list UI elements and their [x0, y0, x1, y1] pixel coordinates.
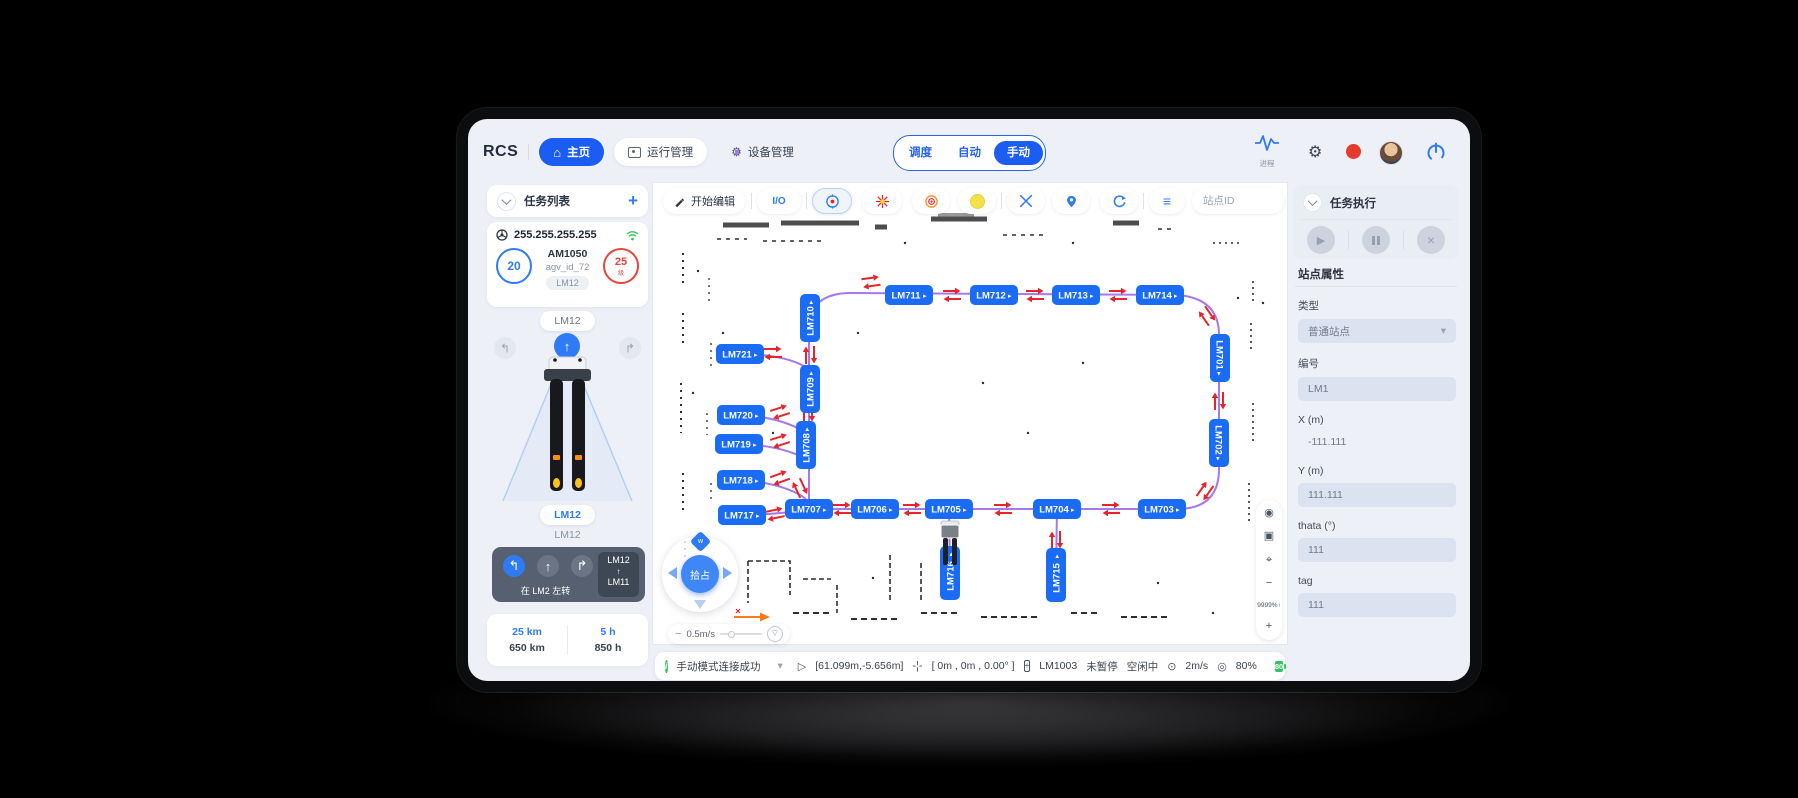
chevron-down-icon: [1308, 196, 1318, 206]
svg-text:↑: ↑: [564, 339, 571, 354]
svg-text:▸: ▸: [1176, 507, 1180, 514]
compass-tool-button[interactable]: [812, 188, 852, 214]
user-avatar[interactable]: [1379, 141, 1403, 165]
field-label: thata (°): [1298, 520, 1456, 532]
cursor-coords: [61.099m,-5.656m]: [815, 660, 903, 672]
joystick[interactable]: w 拾占: [662, 536, 738, 612]
refresh-icon: [1112, 194, 1127, 209]
station-nodes: LM710▸LM721▸LM711▸LM712▸LM713▸LM714▸LM70…: [715, 285, 1230, 602]
load-percent: 80%: [1236, 660, 1257, 672]
map-node-LM719[interactable]: LM719▸: [715, 434, 763, 454]
steering-wheel-icon: [496, 229, 508, 241]
rotate-left-button[interactable]: ↰: [494, 337, 516, 359]
svg-text:↰: ↰: [500, 342, 510, 356]
add-task-button[interactable]: +: [628, 194, 638, 208]
svg-text:↱: ↱: [625, 342, 635, 356]
map-node-LM705[interactable]: LM705▸: [925, 499, 973, 519]
speed-reading: 2m/s: [1185, 660, 1208, 672]
go-forward-button[interactable]: ↑: [537, 555, 559, 577]
svg-text:▸: ▸: [808, 371, 815, 375]
direction-arrows-icon: [1194, 479, 1216, 502]
svg-text:LM707: LM707: [791, 504, 821, 515]
route-path: [809, 293, 1219, 509]
svg-text:LM705: LM705: [931, 504, 961, 515]
svg-text:▸: ▸: [1008, 293, 1012, 300]
forward-button[interactable]: ↑: [554, 333, 580, 359]
eye-icon[interactable]: ◉: [1264, 508, 1274, 519]
nav-tab-operations-label: 运行管理: [647, 144, 693, 160]
starburst-tool-button[interactable]: [862, 188, 902, 214]
map-node-LM720[interactable]: LM720▸: [717, 405, 765, 425]
svg-text:▸: ▸: [755, 413, 759, 420]
pause-button[interactable]: [1362, 226, 1390, 254]
route-from: LM12: [598, 555, 639, 567]
svg-text:▸: ▸: [756, 513, 760, 520]
toolbar-sep-1: [751, 193, 752, 209]
power-button[interactable]: [1424, 140, 1448, 169]
agv-model: AM1050: [540, 248, 595, 260]
task-exec-card: 任务执行 ▶ ×: [1293, 185, 1459, 259]
mode-toggle: 调度 自动 手动: [893, 135, 1046, 171]
app-screen: RCS ⌂ 主页 运行管理 ⚙ 设备管理 调度 自动 手动: [468, 119, 1470, 681]
svg-text:LM710: LM710: [805, 306, 816, 336]
manual-control-panel: ↰ ↑ ↱ LM12 ↑ LM11 在 LM2 左转: [492, 547, 645, 602]
refresh-button[interactable]: [1100, 188, 1138, 214]
field-value: 111: [1308, 599, 1324, 611]
app-logo: RCS: [483, 143, 518, 161]
clear-selection-button[interactable]: [1007, 188, 1045, 214]
idle-state: 空闲中: [1127, 659, 1159, 674]
turn-back-button[interactable]: ↰: [503, 555, 525, 577]
svg-text:LM711: LM711: [891, 290, 921, 301]
direction-arrows-icon: [1196, 304, 1218, 327]
props-divider: [1295, 286, 1457, 287]
field-label: Y (m): [1298, 465, 1456, 477]
map-status-bar: i 手动模式连接成功 ▾ ▷ [61.099m,-5.656m] -¦- [ 0…: [655, 652, 1285, 680]
topbar-left: RCS ⌂ 主页 运行管理 ⚙ 设备管理: [483, 138, 808, 166]
svg-text:LM706: LM706: [857, 504, 887, 515]
robot-pose: [ 0m , 0m , 0.00° ]: [932, 660, 1015, 672]
device-frame: RCS ⌂ 主页 运行管理 ⚙ 设备管理 调度 自动 手动: [457, 108, 1481, 692]
battery-icon: 80: [1275, 661, 1283, 672]
toolbar-sep-4: [1143, 193, 1144, 209]
agv-ip-row: 255.255.255.255: [496, 229, 639, 241]
field-value: 111.111: [1308, 489, 1343, 501]
svg-text:▸: ▸: [963, 507, 967, 514]
stat-distance: 25 km 650 km: [487, 626, 567, 654]
field-input[interactable]: 111: [1298, 593, 1456, 617]
field-input[interactable]: 111: [1298, 538, 1456, 562]
info-icon: i: [665, 660, 668, 673]
io-label: I/O: [772, 196, 785, 207]
svg-text:▸: ▸: [1054, 554, 1061, 558]
pb-sep-1: [1348, 231, 1349, 249]
chevron-down-icon: [502, 195, 512, 205]
mode-dispatch[interactable]: 调度: [896, 141, 945, 165]
collapse-task-list-button[interactable]: [497, 192, 516, 211]
svg-text:▸: ▸: [804, 427, 811, 431]
joystick-up-diamond[interactable]: w: [690, 531, 711, 552]
station-pill-top[interactable]: LM12: [540, 311, 595, 331]
play-button[interactable]: ▶: [1307, 226, 1335, 254]
toolbar-sep-3: [1001, 193, 1002, 209]
svg-text:LM701: LM701: [1214, 340, 1225, 370]
map-node-LM714[interactable]: LM714▸: [1136, 285, 1184, 305]
waveform-icon: [1254, 133, 1280, 153]
map-node-LM708[interactable]: LM708▸: [796, 421, 816, 469]
map-node-LM718[interactable]: LM718▸: [717, 470, 765, 490]
field-value: LM1: [1308, 383, 1328, 395]
start-edit-button[interactable]: 开始编辑: [663, 188, 745, 214]
field-label: tag: [1298, 575, 1456, 587]
svg-text:LM712: LM712: [976, 290, 1006, 301]
map-view-controls: ◉ ▣ ⌖ − 9999%↑ +: [1256, 500, 1282, 640]
stat-hours: 5 h 850 h: [568, 626, 648, 654]
target-tool-button[interactable]: [912, 188, 950, 214]
location-pin-icon: [1065, 194, 1078, 209]
svg-text:▸: ▸: [1174, 293, 1178, 300]
station-pill-bottom[interactable]: LM12: [540, 505, 595, 525]
speedometer-icon: ⊙: [1167, 660, 1176, 673]
cross-icon: [1019, 194, 1033, 208]
speed-minus-icon[interactable]: −: [675, 628, 681, 640]
svg-text:▸: ▸: [754, 352, 758, 359]
status-message: 手动模式连接成功: [677, 659, 761, 674]
svg-text:LM704: LM704: [1039, 504, 1069, 515]
agv-card[interactable]: 255.255.255.255 20 AM1050 agv_id_72 LM12: [487, 222, 648, 307]
svg-text:LM708: LM708: [801, 433, 812, 463]
station-box-icon: +: [1024, 660, 1031, 672]
direction-arrows-icon: [861, 274, 881, 291]
route-action-text: 在 LM2 左转: [498, 584, 593, 597]
joystick-center-button[interactable]: 拾占: [681, 555, 719, 593]
field-value: 普通站点: [1308, 324, 1350, 339]
minimap-icon[interactable]: ▣: [1264, 531, 1274, 542]
toolbar-sep-2: [806, 193, 807, 209]
map-node-LM706[interactable]: LM706▸: [851, 499, 899, 519]
target-icon: [924, 194, 939, 209]
nav-tab-home[interactable]: ⌂ 主页: [539, 138, 604, 166]
pencil-icon: [673, 195, 686, 208]
mode-manual[interactable]: 手动: [994, 141, 1043, 165]
svg-text:LM720: LM720: [723, 410, 753, 421]
map-canvas[interactable]: LM710▸LM721▸LM711▸LM712▸LM713▸LM714▸LM70…: [652, 182, 1288, 645]
agv-count-badge: 20: [496, 248, 532, 284]
zoom-out-icon[interactable]: −: [1266, 578, 1272, 589]
start-edit-label: 开始编辑: [691, 193, 735, 209]
svg-text:LM713: LM713: [1058, 290, 1088, 301]
filter-funnel-icon[interactable]: ▽: [767, 626, 783, 642]
map-node-LM713[interactable]: LM713▸: [1052, 285, 1100, 305]
compass-icon: [825, 194, 840, 209]
monitor-icon: [628, 147, 641, 158]
agv-identity: AM1050 agv_id_72 LM12: [540, 248, 595, 291]
station-search[interactable]: [1192, 188, 1284, 214]
station-props-form: 类型普通站点▾编号LM1X (m)-111.111Y (m)111.111tha…: [1298, 294, 1456, 617]
svg-text:▸: ▸: [889, 507, 893, 514]
play-icon: ▶: [1317, 234, 1325, 247]
route-arrow-icon: ↑: [598, 567, 639, 577]
wifi-icon: [626, 230, 639, 241]
agv-station-tag: LM12: [546, 276, 589, 290]
map-node-LM711[interactable]: LM711▸: [885, 285, 933, 305]
svg-text:LM716: LM716: [945, 561, 956, 591]
turn-right-button[interactable]: ↱: [571, 555, 593, 577]
svg-text:▸: ▸: [1214, 457, 1221, 461]
pause-icon: [1372, 236, 1380, 245]
nav-tab-devices-label: 设备管理: [748, 144, 794, 160]
crosshair-icon: -¦-: [912, 660, 922, 672]
task-list-title: 任务列表: [524, 193, 570, 209]
home-icon: ⌂: [553, 145, 561, 160]
pb-sep-2: [1403, 231, 1404, 249]
nav-tab-home-label: 主页: [567, 144, 590, 160]
power-icon: [1424, 140, 1448, 164]
map-node-LM704[interactable]: LM704▸: [1033, 499, 1081, 519]
map-node-LM715[interactable]: LM715▸: [1046, 548, 1066, 602]
field-label: X (m): [1298, 414, 1456, 426]
origin-axis-icon: [732, 605, 772, 625]
mode-auto[interactable]: 自动: [945, 141, 994, 165]
red-status-dot[interactable]: [1346, 144, 1361, 159]
forward-icon: ↑: [545, 559, 552, 574]
svg-text:LM714: LM714: [1142, 290, 1172, 301]
menu-icon: ≡: [1163, 193, 1171, 209]
joystick-right-arrow[interactable]: [723, 567, 732, 579]
field-select[interactable]: 普通站点▾: [1298, 319, 1456, 343]
slam-walls: [681, 215, 1253, 619]
svg-text:LM709: LM709: [805, 377, 816, 407]
turn-left-icon: ↰: [509, 558, 520, 574]
pause-state: 未暂停: [1086, 659, 1118, 674]
agv-battery-badge: 25 级: [603, 248, 639, 284]
settings-gear-icon[interactable]: ⚙: [1308, 142, 1322, 162]
svg-text:▸: ▸: [823, 507, 827, 514]
gear-device-icon: ⚙: [731, 145, 742, 159]
zone-tool-button[interactable]: [958, 188, 996, 214]
yellow-circle-icon: [970, 194, 985, 209]
starburst-icon: [875, 194, 890, 209]
process-label: 进程: [1254, 158, 1280, 169]
map-svg: LM710▸LM721▸LM711▸LM712▸LM713▸LM714▸LM70…: [653, 183, 1287, 644]
speed-slider[interactable]: [720, 633, 762, 635]
svg-text:▸: ▸: [1090, 293, 1094, 300]
svg-text:▸: ▸: [808, 300, 815, 304]
field-label: 类型: [1298, 298, 1456, 313]
svg-text:LM721: LM721: [722, 349, 752, 360]
cursor-icon: ▷: [798, 660, 806, 673]
map-node-LM707[interactable]: LM707▸: [785, 499, 833, 519]
cancel-task-button[interactable]: ×: [1417, 226, 1445, 254]
topbar-separator: [528, 144, 529, 160]
field-value: -111.111: [1308, 436, 1346, 448]
agv-info-row: 20 AM1050 agv_id_72 LM12 25 级: [496, 248, 639, 291]
field-input[interactable]: LM1: [1298, 377, 1456, 401]
stage: RCS ⌂ 主页 运行管理 ⚙ 设备管理 调度 自动 手动: [0, 0, 1798, 798]
route-to: LM11: [598, 577, 639, 589]
svg-text:LM719: LM719: [721, 439, 751, 450]
field-input[interactable]: 111.111: [1298, 483, 1456, 507]
map-node-LM717[interactable]: LM717▸: [718, 505, 766, 525]
wheel-icon: ◎: [1217, 660, 1227, 673]
process-widget[interactable]: 进程: [1254, 133, 1280, 169]
layers-menu-button[interactable]: ≡: [1149, 188, 1185, 214]
svg-text:LM703: LM703: [1144, 504, 1174, 515]
direction-arrows-icon: [943, 288, 961, 302]
task-list-header: 任务列表 +: [487, 185, 648, 217]
focus-icon[interactable]: ⌖: [1266, 555, 1272, 566]
turn-right-icon: ↱: [577, 558, 588, 574]
map-node-LM701[interactable]: LM701▸: [1210, 334, 1230, 382]
map-node-LM702[interactable]: LM702▸: [1209, 419, 1229, 467]
chevron-down-icon: ▾: [1441, 325, 1446, 337]
task-exec-title: 任务执行: [1330, 195, 1376, 211]
io-button[interactable]: I/O: [757, 188, 801, 214]
status-dropdown-icon[interactable]: ▾: [778, 660, 783, 672]
station-search-input[interactable]: [1201, 194, 1269, 208]
svg-text:LM715: LM715: [1051, 563, 1062, 593]
collapse-task-exec-button[interactable]: [1303, 193, 1322, 212]
svg-text:▸: ▸: [1215, 372, 1222, 376]
direction-arrows-icon: [790, 477, 811, 499]
map-node-LM709[interactable]: LM709▸: [800, 365, 820, 413]
svg-text:▸: ▸: [923, 293, 927, 300]
map-node-LM703[interactable]: LM703▸: [1138, 499, 1186, 519]
svg-text:LM717: LM717: [724, 510, 754, 521]
current-station: LM1003: [1039, 660, 1077, 672]
locate-button[interactable]: [1052, 188, 1090, 214]
svg-text:▸: ▸: [753, 442, 757, 449]
robot-view: ↰ ↱ ↑: [487, 333, 648, 503]
close-icon: ×: [1427, 232, 1435, 248]
nav-tab-devices[interactable]: ⚙ 设备管理: [717, 138, 808, 166]
station-text-bottom: LM12: [487, 529, 648, 541]
speed-value: 0.5m/s: [686, 629, 715, 640]
nav-tab-operations[interactable]: 运行管理: [614, 138, 707, 166]
field-value: 111: [1308, 544, 1324, 556]
stats-card: 25 km 650 km 5 h 850 h: [487, 614, 648, 666]
speed-control: − 0.5m/s ▽: [668, 624, 790, 644]
svg-text:▸: ▸: [1071, 507, 1075, 514]
joystick-down-arrow[interactable]: [694, 600, 706, 609]
field-label: 编号: [1298, 356, 1456, 371]
map-node-LM712[interactable]: LM712▸: [970, 285, 1018, 305]
map-node-LM721[interactable]: LM721▸: [716, 344, 764, 364]
zoom-level: 9999%↑: [1257, 602, 1281, 609]
joystick-left-arrow[interactable]: [668, 567, 677, 579]
rotate-right-button[interactable]: ↱: [619, 337, 641, 359]
task-exec-header: 任务执行: [1293, 185, 1459, 212]
svg-text:LM718: LM718: [723, 475, 753, 486]
playback-controls: ▶ ×: [1293, 220, 1459, 254]
svg-text:▸: ▸: [755, 478, 759, 485]
zoom-in-icon[interactable]: +: [1266, 621, 1272, 632]
station-props-title: 站点属性: [1298, 266, 1344, 282]
route-box: LM12 ↑ LM11: [598, 552, 639, 597]
agv-id: agv_id_72: [540, 262, 595, 273]
svg-text:LM702: LM702: [1213, 425, 1224, 455]
map-node-LM710[interactable]: LM710▸: [800, 294, 820, 342]
field-input: -111.111: [1298, 432, 1456, 452]
joystick-w-label: w: [693, 534, 708, 549]
agv-ip: 255.255.255.255: [514, 229, 597, 241]
